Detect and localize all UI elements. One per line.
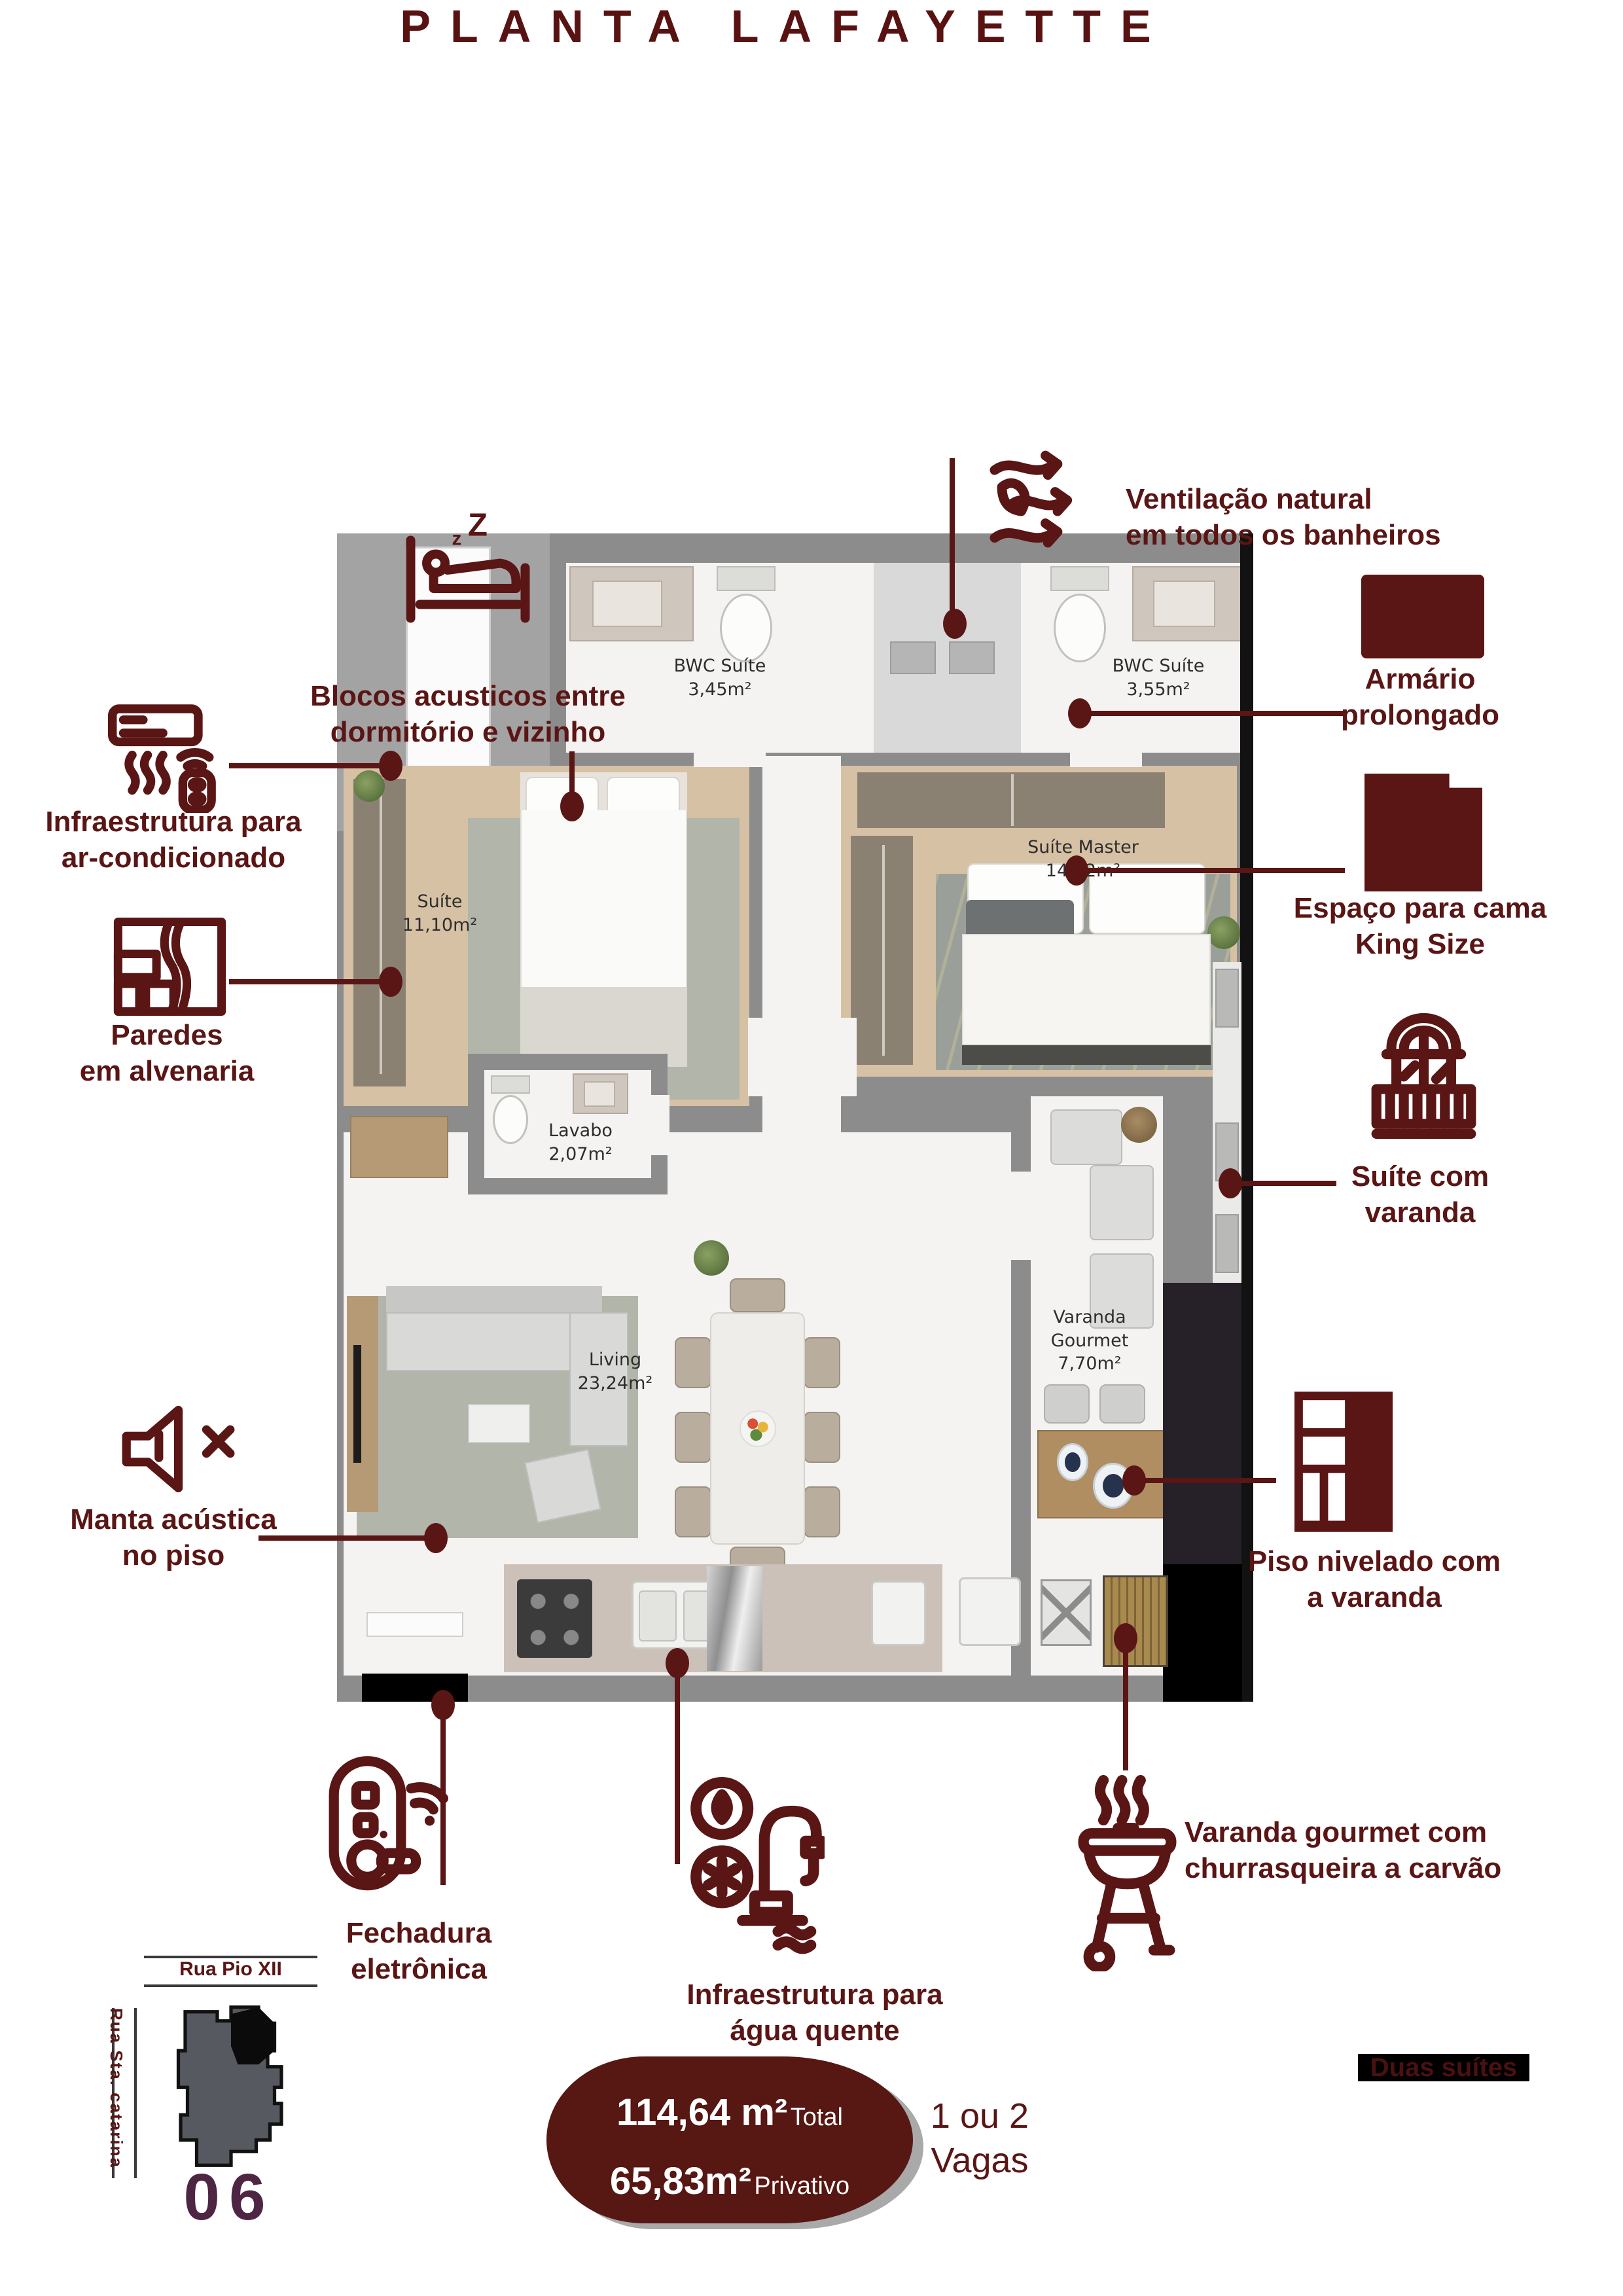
leader-dot xyxy=(1122,1465,1146,1496)
room-label-suite: Suíte 11,10m² xyxy=(402,890,477,937)
tv xyxy=(353,1345,361,1463)
callout-churrasqueira: Varanda gourmet com churrasqueira a carv… xyxy=(1185,1814,1501,1886)
door-gap xyxy=(694,746,766,767)
callout-agua: Infraestrutura para água quente xyxy=(635,1977,995,2049)
duct-box xyxy=(1041,1579,1092,1646)
leader-dot xyxy=(943,609,967,639)
private-area: 65,83m² Privativo xyxy=(546,2159,913,2203)
room-label-varanda: Varanda Gourmet 7,70m² xyxy=(1051,1306,1129,1376)
chair xyxy=(730,1278,785,1312)
plant xyxy=(1207,916,1240,949)
leader-line xyxy=(259,1535,425,1541)
stool xyxy=(1044,1384,1090,1424)
closet xyxy=(851,836,913,1065)
leader-line xyxy=(229,979,385,984)
air-conditioner-icon xyxy=(108,702,229,813)
toilet xyxy=(1054,594,1106,662)
leader-line xyxy=(1123,1649,1128,1770)
sink xyxy=(573,1073,628,1114)
bed-duvet xyxy=(520,810,687,987)
level-floor-icon xyxy=(1294,1391,1393,1532)
master-bed xyxy=(962,861,1211,1054)
leader-dot xyxy=(666,1648,689,1678)
shaft-panel xyxy=(949,641,995,674)
steel-counter xyxy=(707,1566,762,1671)
toilet xyxy=(491,1075,530,1094)
armchair xyxy=(524,1449,601,1524)
chair xyxy=(804,1337,840,1388)
glass-curtain xyxy=(1163,1283,1241,1564)
planter xyxy=(1215,1214,1239,1273)
leader-dot xyxy=(1065,855,1088,886)
sleeping-bed-icon: Zz xyxy=(399,511,537,625)
room-label-bwc1: BWC Suíte 3,45m² xyxy=(674,655,766,701)
leader-dot xyxy=(424,1523,448,1553)
building-footprint xyxy=(171,2004,286,2178)
chair xyxy=(675,1337,711,1388)
planter xyxy=(1215,969,1239,1028)
cooktop xyxy=(517,1579,592,1658)
street-label-side: Rua Sta. catarina xyxy=(106,2008,126,2178)
door-gap xyxy=(1010,1172,1032,1260)
sofa xyxy=(386,1286,602,1312)
door-gap xyxy=(838,1018,857,1096)
page-title: PLANTA LAFAYETTE xyxy=(0,0,1571,52)
leader-line xyxy=(675,1674,680,1864)
street-label-top: Rua Pio XII xyxy=(144,1958,317,1981)
plant xyxy=(694,1240,729,1276)
vanity xyxy=(569,566,694,641)
leader-line xyxy=(1085,868,1345,873)
leader-dot xyxy=(1114,1623,1137,1653)
leader-line xyxy=(1142,1478,1276,1483)
leader-dot xyxy=(431,1690,455,1720)
unit-number: 06 xyxy=(164,2160,294,2235)
charcoal-grill xyxy=(1103,1575,1168,1667)
chair xyxy=(804,1412,840,1463)
muted-speaker-icon xyxy=(118,1399,242,1499)
leader-dot xyxy=(1068,698,1092,728)
leader-dot xyxy=(379,967,402,997)
door-gap xyxy=(748,1018,765,1096)
callout-suite-varanda: Suíte com varanda xyxy=(1299,1158,1541,1230)
tv-cabinet xyxy=(347,1296,378,1512)
parking-info: 1 ou 2 Vagas xyxy=(911,2094,1048,2183)
door-gap xyxy=(1070,746,1142,767)
fruit-bowl xyxy=(740,1410,776,1447)
chair xyxy=(675,1486,711,1537)
callout-ventilacao: Ventilação natural em todos os banheiros xyxy=(1126,481,1441,553)
leader-line xyxy=(950,458,955,619)
leader-line xyxy=(569,751,575,796)
callout-king: Espaço para cama King Size xyxy=(1260,890,1580,962)
hot-water-icon xyxy=(690,1762,825,1962)
chair xyxy=(675,1412,711,1463)
stool xyxy=(1099,1384,1145,1424)
callout-paredes: Paredes em alvenaria xyxy=(20,1017,314,1089)
leader-line xyxy=(440,1716,446,1885)
chair xyxy=(804,1486,840,1537)
callout-blocos: Blocos acusticos entre dormitório e vizi… xyxy=(281,678,654,750)
svg-text:Z: Z xyxy=(468,511,488,543)
plant xyxy=(353,770,385,802)
callout-infra-ar: Infraestrutura para ar-condicionado xyxy=(20,804,327,876)
charcoal-grill-icon xyxy=(1077,1775,1178,1971)
area-badge: 114,64 m² Total 65,83m² Privativo xyxy=(546,2056,913,2223)
svg-text:z: z xyxy=(452,528,462,550)
callout-piso: Piso nivelado com a varanda xyxy=(1198,1543,1551,1615)
wind-leaf-icon xyxy=(985,448,1106,560)
lounge-chair xyxy=(1050,1109,1122,1165)
map-rule xyxy=(144,1984,317,1987)
callout-armario: Armário prolongado xyxy=(1276,661,1564,733)
suites-highlight: Duas suítes xyxy=(1358,2054,1529,2081)
plant xyxy=(1121,1107,1157,1143)
plan-right-edge xyxy=(1240,533,1253,1702)
toilet xyxy=(493,1095,528,1144)
balcony-icon xyxy=(1366,1007,1481,1144)
flyer-page: PLANTA LAFAYETTE xyxy=(0,0,1623,2296)
sideboard xyxy=(350,1116,448,1178)
room-label-living: Living 23,24m² xyxy=(578,1348,652,1395)
leader-line xyxy=(1088,711,1345,716)
king-bed-icon xyxy=(1364,774,1482,891)
leader-line xyxy=(1238,1181,1336,1186)
total-area: 114,64 m² Total xyxy=(546,2090,913,2134)
leader-line xyxy=(229,763,385,768)
door-gap xyxy=(650,1095,669,1155)
closet xyxy=(353,779,406,1086)
armchair xyxy=(1090,1165,1154,1240)
room-label-lavabo: Lavabo 2,07m² xyxy=(548,1119,613,1166)
leader-dot xyxy=(379,751,402,781)
leader-dot xyxy=(1219,1168,1242,1198)
toilet xyxy=(717,566,776,591)
plate xyxy=(1057,1443,1088,1481)
map-rule xyxy=(134,2008,137,2178)
vanity xyxy=(1132,566,1243,641)
toilet xyxy=(1050,566,1109,591)
leader-dot xyxy=(560,791,584,821)
service-sink xyxy=(959,1577,1021,1646)
brick-wall-icon xyxy=(113,918,227,1016)
toilet xyxy=(720,594,772,662)
wardrobe-icon xyxy=(1361,575,1484,658)
bed-duvet xyxy=(962,934,1211,1045)
coffee-table xyxy=(468,1404,530,1443)
shaft-panel xyxy=(890,641,936,674)
laundry-sink xyxy=(871,1581,926,1646)
bed-bench xyxy=(962,1045,1211,1065)
fruit-plate xyxy=(597,1615,629,1646)
closet xyxy=(857,772,1165,828)
entry-door xyxy=(366,1612,463,1637)
room-label-bwc2: BWC Suíte 3,55m² xyxy=(1113,655,1205,701)
smart-lock-icon xyxy=(324,1755,448,1896)
